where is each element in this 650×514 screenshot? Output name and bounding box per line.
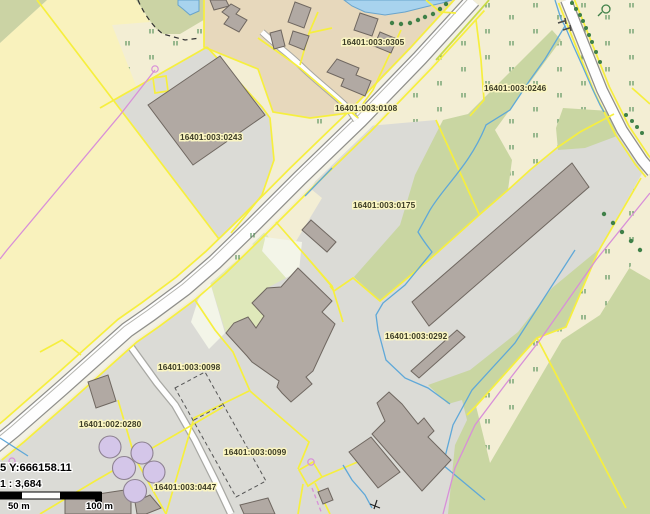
svg-text:16401:003:0447: 16401:003:0447 xyxy=(154,482,217,492)
svg-text:5 Y:666158.11: 5 Y:666158.11 xyxy=(0,462,72,474)
svg-text:100 m: 100 m xyxy=(86,501,113,512)
svg-text:16401:003:0099: 16401:003:0099 xyxy=(224,447,287,457)
svg-text:16401:002:0280: 16401:002:0280 xyxy=(79,419,142,429)
svg-text:16401:003:0305: 16401:003:0305 xyxy=(342,37,405,47)
svg-text:16401:003:0098: 16401:003:0098 xyxy=(158,362,221,372)
svg-text:16401:003:0246: 16401:003:0246 xyxy=(484,83,547,93)
svg-text:16401:003:0243: 16401:003:0243 xyxy=(180,132,243,142)
svg-text:16401:003:0108: 16401:003:0108 xyxy=(335,103,398,113)
svg-text:1 : 3,684: 1 : 3,684 xyxy=(0,478,42,490)
svg-text:16401:003:0175: 16401:003:0175 xyxy=(353,200,416,210)
svg-text:50 m: 50 m xyxy=(8,501,30,512)
svg-text:16401:003:0292: 16401:003:0292 xyxy=(385,331,448,341)
